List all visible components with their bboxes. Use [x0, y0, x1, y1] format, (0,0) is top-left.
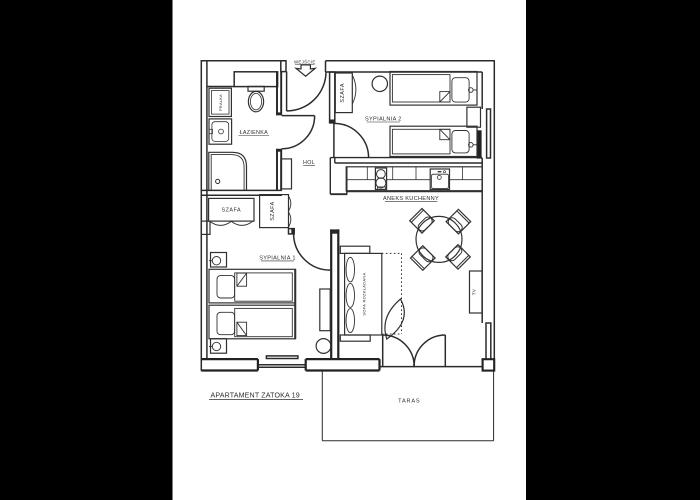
svg-text:SOFA ROZKŁADANA: SOFA ROZKŁADANA [361, 272, 366, 315]
svg-text:TV: TV [472, 288, 477, 295]
svg-text:WEJŚCIE: WEJŚCIE [294, 60, 316, 65]
svg-text:SZAFA: SZAFA [340, 83, 346, 103]
svg-text:APARTAMENT ZATOKA 19: APARTAMENT ZATOKA 19 [211, 391, 300, 399]
svg-text:TARAS: TARAS [398, 398, 420, 404]
svg-text:SZAFA: SZAFA [222, 208, 242, 214]
svg-text:PRALKA: PRALKA [219, 94, 223, 111]
svg-text:SZAFA: SZAFA [270, 201, 276, 221]
